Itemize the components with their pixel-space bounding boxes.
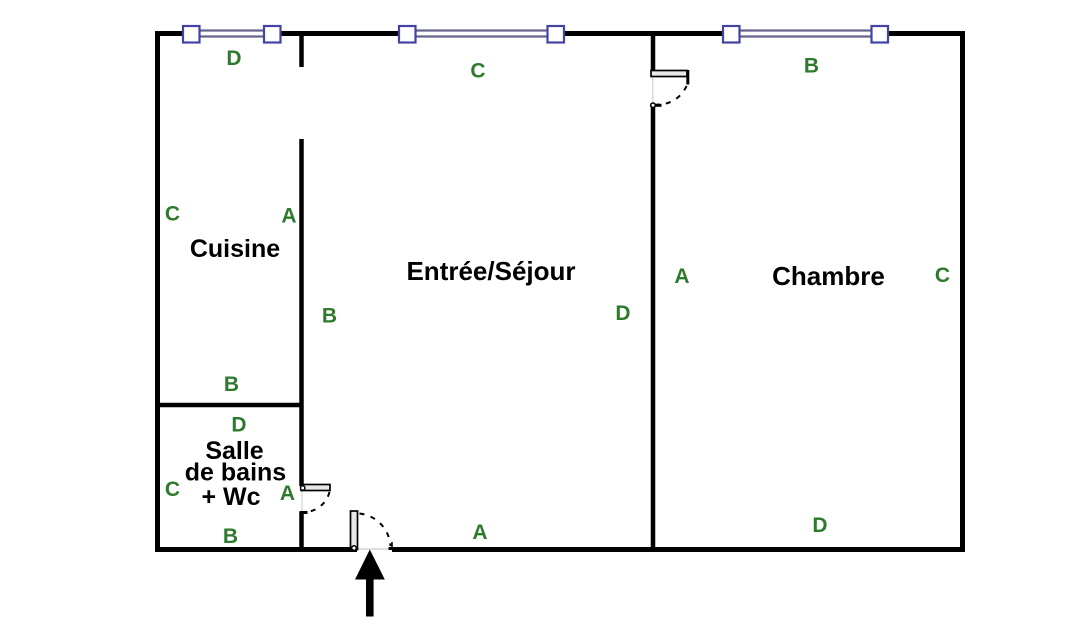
- svg-text:D: D: [812, 514, 827, 537]
- svg-text:A: A: [674, 265, 689, 288]
- svg-text:B: B: [224, 373, 239, 396]
- svg-text:D: D: [231, 414, 246, 437]
- svg-text:C: C: [470, 60, 485, 83]
- svg-text:B: B: [322, 305, 337, 328]
- svg-text:B: B: [804, 55, 819, 78]
- svg-text:C: C: [165, 203, 180, 226]
- svg-text:Cuisine: Cuisine: [190, 235, 280, 263]
- svg-text:D: D: [226, 47, 241, 70]
- svg-text:A: A: [281, 205, 296, 228]
- svg-text:C: C: [165, 478, 180, 501]
- svg-text:A: A: [472, 521, 487, 544]
- svg-text:Entrée/Séjour: Entrée/Séjour: [406, 256, 575, 286]
- svg-text:+ Wc: + Wc: [201, 483, 260, 511]
- svg-text:D: D: [615, 302, 630, 325]
- svg-text:Chambre: Chambre: [772, 261, 885, 291]
- svg-text:C: C: [935, 264, 950, 287]
- svg-text:B: B: [223, 525, 238, 548]
